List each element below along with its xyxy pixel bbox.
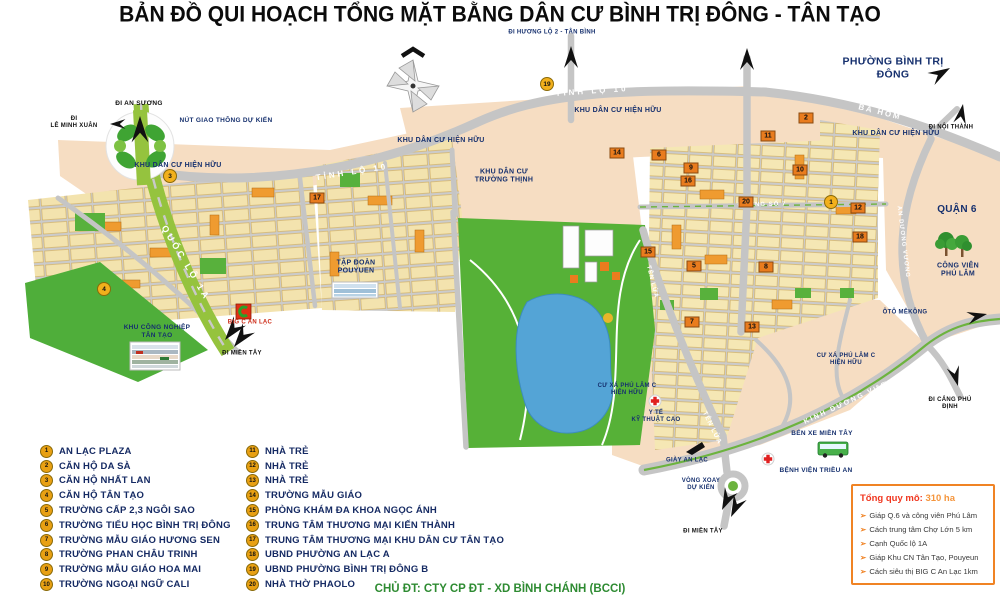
legend-item-label: NHÀ TRẺ xyxy=(265,446,309,457)
project-scale-label: Tổng quy mô: xyxy=(860,493,923,504)
map-marker-3: 3 xyxy=(163,169,177,183)
legend-item-11: 11NHÀ TRẺ xyxy=(246,444,504,459)
legend-item-label: CĂN HỘ NHẤT LAN xyxy=(59,475,151,486)
map-marker-17: 17 xyxy=(310,193,325,204)
label-nut-giao-thong-du-kien: NÚT GIAO THÔNG DỰ KIẾN xyxy=(180,117,273,125)
legend-number-badge: 5 xyxy=(40,504,53,517)
legend-item-12: 12NHÀ TRẺ xyxy=(246,459,504,474)
legend-item-label: CĂN HỘ TÂN TẠO xyxy=(59,490,144,501)
label-y-te-ky-thuat-cao: Y TẾ KỸ THUẬT CAO xyxy=(632,410,681,424)
legend-number-badge: 4 xyxy=(40,489,53,502)
map-marker-7: 7 xyxy=(685,317,700,328)
legend-number-badge: 8 xyxy=(40,548,53,561)
legend-item-label: TRƯỜNG CẤP 2,3 NGÔI SAO xyxy=(59,505,195,516)
legend-number-badge: 12 xyxy=(246,460,259,473)
info-bullet-text: Giáp Khu CN Tân Tạo, Pouyeun xyxy=(869,551,978,565)
legend-number-badge: 9 xyxy=(40,563,53,576)
legend-item-1: 1AN LẠC PLAZA xyxy=(40,444,231,459)
map-marker-13: 13 xyxy=(745,322,760,333)
legend-item-9: 9TRƯỜNG MẪU GIÁO HOA MAI xyxy=(40,562,231,577)
map-marker-16: 16 xyxy=(681,176,696,187)
bullet-arrow-icon: ➢ xyxy=(860,523,866,537)
legend-item-8: 8TRƯỜNG PHAN CHÂU TRINH xyxy=(40,548,231,563)
label-di-an-suong: ĐI AN SƯƠNG xyxy=(115,100,163,108)
legend-item-label: TRUNG TÂM THƯƠNG MẠI KIẾN THÀNH xyxy=(265,520,455,531)
legend-item-16: 16TRUNG TÂM THƯƠNG MẠI KIẾN THÀNH xyxy=(246,518,504,533)
info-bullet-text: Cạnh Quốc lộ 1A xyxy=(869,537,927,551)
label-ben-xe-mien-tay: BẾN XE MIỀN TÂY xyxy=(791,430,853,438)
map-marker-12: 12 xyxy=(851,203,866,214)
label-di-mien-tay-2: ĐI MIỀN TÂY xyxy=(683,528,723,535)
label-big-c-an-lac: BIG C AN LẠC xyxy=(228,319,272,326)
info-bullet: ➢Giáp Q.6 và công viên Phú Lâm xyxy=(860,509,986,523)
legend-item-6: 6TRƯỜNG TIỂU HỌC BÌNH TRỊ ĐÔNG xyxy=(40,518,231,533)
bus-icon xyxy=(818,442,848,458)
legend-column-1: 1AN LẠC PLAZA2CĂN HỘ DA SÀ3CĂN HỘ NHẤT L… xyxy=(40,444,231,592)
legend-number-badge: 18 xyxy=(246,548,259,561)
map-marker-6: 6 xyxy=(652,150,667,161)
tan-tao-photo xyxy=(130,342,180,370)
legend-item-15: 15PHÒNG KHÁM ĐA KHOA NGỌC ÁNH xyxy=(246,503,504,518)
map-marker-2: 2 xyxy=(799,113,814,124)
map-marker-9: 9 xyxy=(684,163,699,174)
legend-number-badge: 1 xyxy=(40,445,53,458)
compass-icon xyxy=(387,49,439,112)
info-bullet: ➢Giáp Khu CN Tân Tạo, Pouyeun xyxy=(860,551,986,565)
label-tap-doan-pouyuen: TẬP ĐOÀN POUYUEN xyxy=(337,260,376,277)
label-di-mien-tay-1: ĐI MIỀN TÂY xyxy=(222,350,262,357)
legend-item-label: NHÀ TRẺ xyxy=(265,461,309,472)
label-vong-xoay-du-kien: VÒNG XOAY DỰ KIẾN xyxy=(682,478,721,492)
legend-item-label: UBND PHƯỜNG BÌNH TRỊ ĐÔNG B xyxy=(265,564,428,575)
legend-item-4: 4CĂN HỘ TÂN TẠO xyxy=(40,488,231,503)
map-marker-14: 14 xyxy=(610,148,625,159)
info-bullet: ➢Cạnh Quốc lộ 1A xyxy=(860,537,986,551)
bullet-arrow-icon: ➢ xyxy=(860,537,866,551)
label-kdc-truong-thinh: KHU DÂN CƯ TRƯỜNG THỊNH xyxy=(475,169,534,186)
planning-map-page: BẢN ĐỒ QUI HOẠCH TỔNG MẶT BẰNG DÂN CƯ BÌ… xyxy=(0,0,1000,604)
bullet-arrow-icon: ➢ xyxy=(860,565,866,579)
legend-item-label: PHÒNG KHÁM ĐA KHOA NGỌC ÁNH xyxy=(265,505,437,516)
map-marker-18: 18 xyxy=(853,232,868,243)
project-info-box: Tổng quy mô: 310 ha ➢Giáp Q.6 và công vi… xyxy=(851,484,995,585)
label-phuong-binh-tri-dong: PHƯỜNG BÌNH TRỊ ĐÔNG xyxy=(840,55,947,80)
map-marker-8: 8 xyxy=(759,262,774,273)
legend-column-2: 11NHÀ TRẺ12NHÀ TRẺ13NHÀ TRẺ14TRƯỜNG MẪU … xyxy=(246,444,504,592)
label-kdc-hien-huu-3: KHU DÂN CƯ HIỆN HỮU xyxy=(574,107,661,115)
legend-number-badge: 15 xyxy=(246,504,259,517)
legend-item-label: TRƯỜNG TIỂU HỌC BÌNH TRỊ ĐÔNG xyxy=(59,520,231,531)
legend-number-badge: 13 xyxy=(246,474,259,487)
developer-credit: CHỦ ĐT: CTY CP ĐT - XD BÌNH CHÁNH (BCCI) xyxy=(0,583,1000,595)
legend-item-2: 2CĂN HỘ DA SÀ xyxy=(40,459,231,474)
lake xyxy=(516,294,613,433)
label-cu-xa-phu-lam-1: CƯ XÁ PHÚ LÂM C HIỆN HỮU xyxy=(817,353,876,367)
legend-item-label: TRUNG TÂM THƯƠNG MẠI KHU DÂN CƯ TÂN TẠO xyxy=(265,535,504,546)
map-marker-19: 19 xyxy=(540,77,554,91)
project-scale: Tổng quy mô: 310 ha xyxy=(860,493,986,504)
map-marker-1: 1 xyxy=(824,195,838,209)
info-bullet-text: Giáp Q.6 và công viên Phú Lâm xyxy=(869,509,977,523)
label-kdc-hien-huu-1: KHU DÂN CƯ HIỆN HỮU xyxy=(134,162,221,170)
label-kdc-hien-huu-4: KHU DÂN CƯ HIỆN HỮU xyxy=(852,130,939,138)
label-benh-vien-trieu-an: BỆNH VIỆN TRIỀU AN xyxy=(779,467,852,475)
label-giay-an-lac: GIÀY AN LẠC xyxy=(666,457,708,464)
legend-number-badge: 6 xyxy=(40,519,53,532)
legend-item-18: 18UBND PHƯỜNG AN LẠC A xyxy=(246,548,504,563)
legend-number-badge: 11 xyxy=(246,445,259,458)
map-marker-15: 15 xyxy=(641,247,656,258)
label-cu-xa-phu-lam-2: CƯ XÁ PHÚ LÂM C HIỆN HỮU xyxy=(598,383,657,397)
legend-item-label: TRƯỜNG MẪU GIÁO HOA MAI xyxy=(59,564,201,575)
legend-item-17: 17TRUNG TÂM THƯƠNG MẠI KHU DÂN CƯ TÂN TẠ… xyxy=(246,533,504,548)
label-quan-6: QUẬN 6 xyxy=(937,204,977,216)
legend-number-badge: 3 xyxy=(40,474,53,487)
pouyuen-photo xyxy=(332,282,378,298)
label-cong-vien-phu-lam: CÔNG VIÊN PHÚ LÂM xyxy=(937,263,979,280)
project-scale-value: 310 ha xyxy=(925,493,955,504)
legend-item-7: 7TRƯỜNG MẪU GIÁO HƯƠNG SEN xyxy=(40,533,231,548)
label-di-le-minh-xuan: ĐI LÊ MINH XUÂN xyxy=(51,116,98,130)
legend-item-label: AN LẠC PLAZA xyxy=(59,446,132,457)
project-info-bullets: ➢Giáp Q.6 và công viên Phú Lâm➢Cách trun… xyxy=(860,509,986,579)
legend-item-13: 13NHÀ TRẺ xyxy=(246,474,504,489)
info-bullet-text: Cách siêu thị BIG C An Lạc 1km xyxy=(869,565,977,579)
info-bullet: ➢Cách siêu thị BIG C An Lạc 1km xyxy=(860,565,986,579)
legend-item-5: 5TRƯỜNG CẤP 2,3 NGÔI SAO xyxy=(40,503,231,518)
info-bullet-text: Cách trung tâm Chợ Lớn 5 km xyxy=(869,523,972,537)
medical-cross-icon-2 xyxy=(762,453,774,465)
label-di-cang-phu-dinh: ĐI CẢNG PHÚ ĐỊNH xyxy=(925,397,975,411)
label-kcn-tan-tao: KHU CÔNG NGHIỆP TÂN TẠO xyxy=(124,324,191,340)
bullet-arrow-icon: ➢ xyxy=(860,509,866,523)
legend-item-label: TRƯỜNG PHAN CHÂU TRINH xyxy=(59,549,198,560)
label-kdc-hien-huu-2: KHU DÂN CƯ HIỆN HỮU xyxy=(397,137,484,145)
legend-number-badge: 2 xyxy=(40,460,53,473)
legend-number-badge: 16 xyxy=(246,519,259,532)
bullet-arrow-icon: ➢ xyxy=(860,551,866,565)
legend-item-label: TRƯỜNG MẪU GIÁO xyxy=(265,490,362,501)
label-oto-mekong: ÔTÔ MÊKÔNG xyxy=(883,309,928,316)
legend-number-badge: 19 xyxy=(246,563,259,576)
central-park xyxy=(458,218,655,448)
legend-item-19: 19UBND PHƯỜNG BÌNH TRỊ ĐÔNG B xyxy=(246,562,504,577)
legend-item-label: CĂN HỘ DA SÀ xyxy=(59,461,131,472)
big-c-logo-icon xyxy=(236,304,251,319)
info-bullet: ➢Cách trung tâm Chợ Lớn 5 km xyxy=(860,523,986,537)
legend-item-3: 3CĂN HỘ NHẤT LAN xyxy=(40,474,231,489)
map-marker-4: 4 xyxy=(97,282,111,296)
map-marker-20: 20 xyxy=(739,197,754,208)
legend-item-label: UBND PHƯỜNG AN LẠC A xyxy=(265,549,390,560)
legend-item-14: 14TRƯỜNG MẪU GIÁO xyxy=(246,488,504,503)
legend-number-badge: 17 xyxy=(246,534,259,547)
map-marker-5: 5 xyxy=(687,261,702,272)
label-di-huong-lo-2-tan-binh: ĐI HƯƠNG LỘ 2 - TÂN BÌNH xyxy=(508,29,595,36)
map-marker-10: 10 xyxy=(793,165,808,176)
legend-number-badge: 14 xyxy=(246,489,259,502)
legend-item-label: NHÀ TRẺ xyxy=(265,475,309,486)
legend-item-label: TRƯỜNG MẪU GIÁO HƯƠNG SEN xyxy=(59,535,220,546)
map-marker-11: 11 xyxy=(761,131,776,142)
legend-number-badge: 7 xyxy=(40,534,53,547)
